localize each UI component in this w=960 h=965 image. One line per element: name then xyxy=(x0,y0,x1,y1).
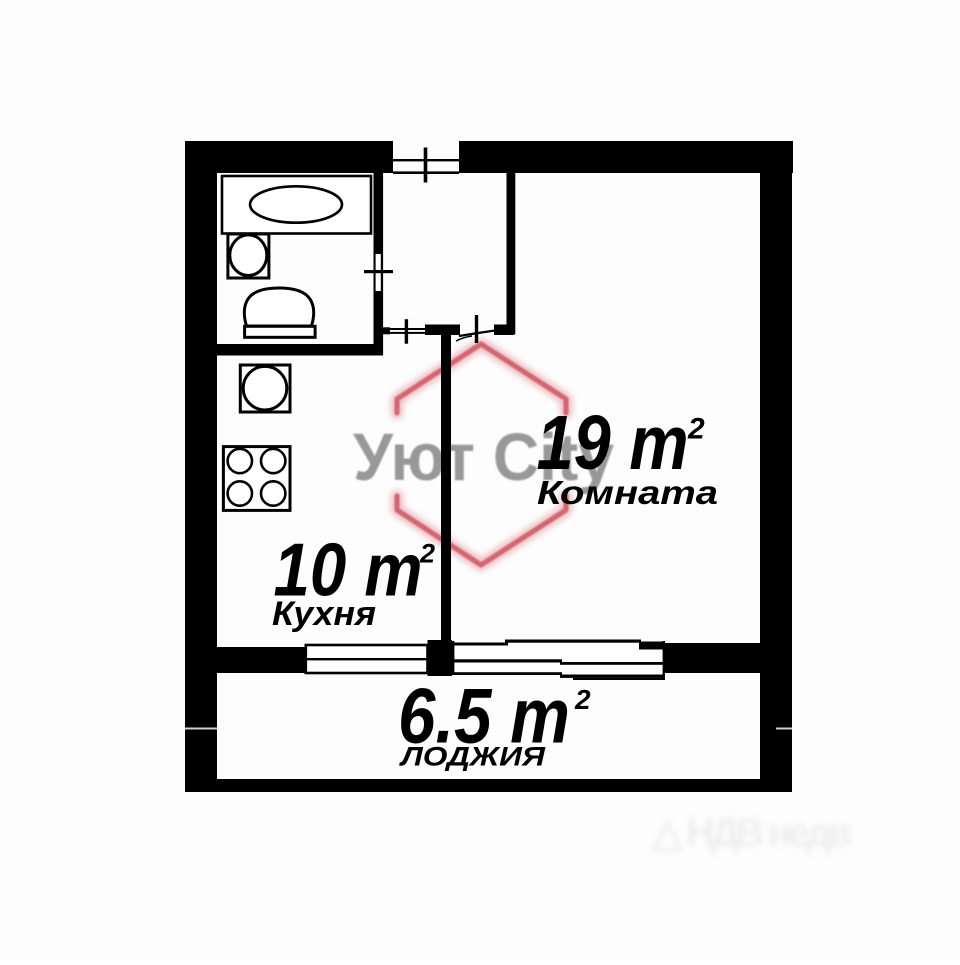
svg-text:2: 2 xyxy=(419,538,435,568)
svg-text:Комната: Комната xyxy=(537,475,718,512)
svg-text:Кухня: Кухня xyxy=(272,595,376,633)
svg-text:ЛОДЖИЯ: ЛОДЖИЯ xyxy=(399,742,546,772)
svg-text:△ НДВ недв: △ НДВ недв xyxy=(651,811,852,855)
svg-text:19 m: 19 m xyxy=(537,400,689,486)
svg-text:2: 2 xyxy=(574,684,591,715)
svg-text:2: 2 xyxy=(687,413,705,446)
